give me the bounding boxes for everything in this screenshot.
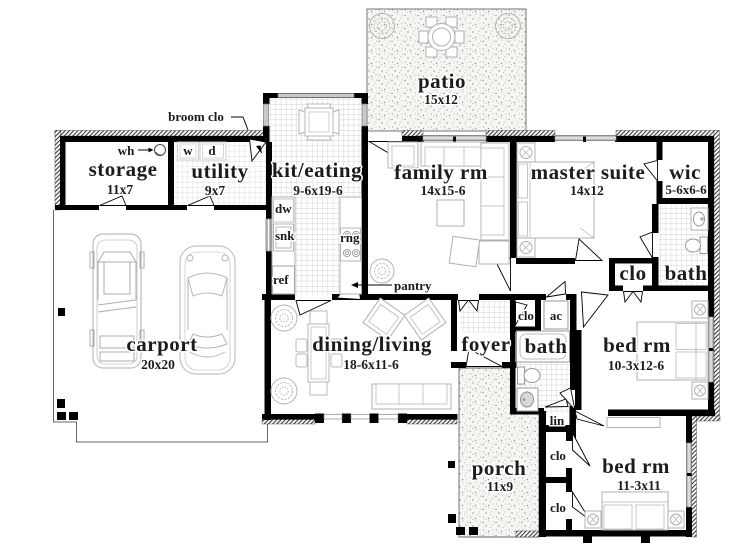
svg-text:15x12: 15x12 xyxy=(424,92,458,107)
svg-text:w: w xyxy=(183,143,193,158)
svg-text:ref: ref xyxy=(273,272,289,287)
svg-text:dw: dw xyxy=(275,201,292,216)
svg-text:master suite: master suite xyxy=(531,160,646,184)
svg-text:wic: wic xyxy=(669,160,701,184)
svg-text:18-6x11-6: 18-6x11-6 xyxy=(343,357,399,372)
svg-text:utility: utility xyxy=(191,159,248,183)
svg-text:family rm: family rm xyxy=(394,160,488,184)
svg-text:kit/eating: kit/eating xyxy=(272,158,362,182)
svg-text:11x9: 11x9 xyxy=(487,479,514,494)
svg-text:clo: clo xyxy=(619,261,646,285)
svg-text:ac: ac xyxy=(550,308,563,323)
svg-text:bath: bath xyxy=(665,261,708,285)
svg-text:carport: carport xyxy=(126,332,197,356)
svg-text:storage: storage xyxy=(89,157,158,181)
svg-text:10-3x12-6: 10-3x12-6 xyxy=(608,358,664,373)
svg-text:11x7: 11x7 xyxy=(107,182,134,197)
svg-text:clo: clo xyxy=(550,500,566,515)
svg-text:9-6x19-6: 9-6x19-6 xyxy=(293,183,343,198)
svg-text:bed rm: bed rm xyxy=(602,454,670,478)
svg-text:bath: bath xyxy=(525,334,568,358)
svg-text:lin: lin xyxy=(550,413,565,428)
svg-text:pantry: pantry xyxy=(394,278,432,293)
svg-text:14x12: 14x12 xyxy=(570,183,604,198)
svg-text:14x15-6: 14x15-6 xyxy=(421,183,466,198)
svg-text:porch: porch xyxy=(472,456,527,480)
svg-text:5-6x6-6: 5-6x6-6 xyxy=(665,182,707,197)
svg-text:snk: snk xyxy=(275,228,295,243)
svg-text:rng: rng xyxy=(340,230,360,245)
svg-text:clo: clo xyxy=(550,448,566,463)
svg-text:clo: clo xyxy=(518,308,534,323)
svg-text:11-3x11: 11-3x11 xyxy=(617,478,661,493)
svg-text:broom clo: broom clo xyxy=(168,109,224,124)
svg-text:bed rm: bed rm xyxy=(603,333,671,357)
svg-text:foyer: foyer xyxy=(461,332,510,356)
svg-text:patio: patio xyxy=(418,69,466,93)
svg-text:dining/living: dining/living xyxy=(312,332,432,356)
svg-text:d: d xyxy=(208,143,216,158)
svg-text:20x20: 20x20 xyxy=(141,357,175,372)
svg-text:wh: wh xyxy=(118,143,135,158)
svg-text:9x7: 9x7 xyxy=(205,183,226,198)
